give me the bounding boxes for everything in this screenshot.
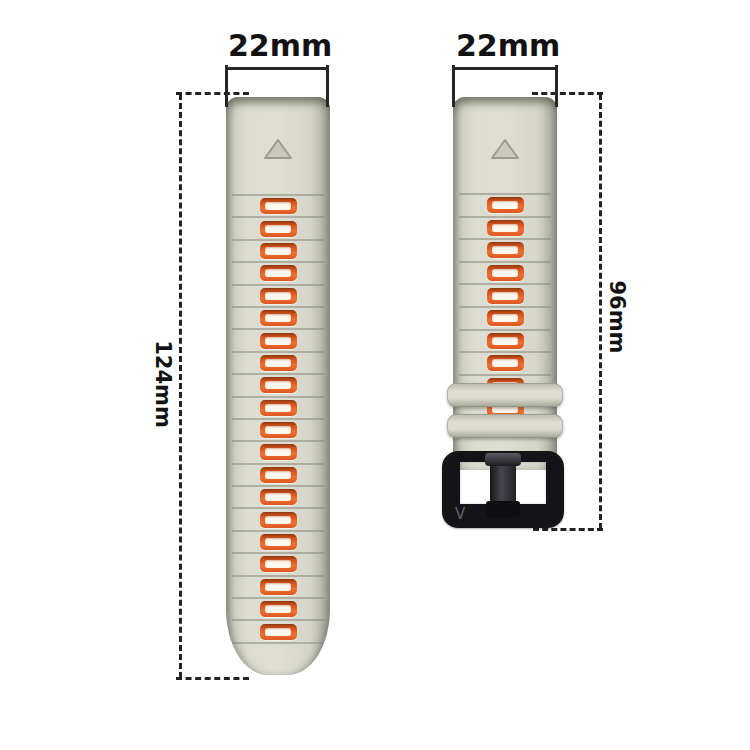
orange-segment xyxy=(487,265,524,281)
orange-segment xyxy=(260,601,297,617)
orange-segment xyxy=(260,288,297,304)
strap-segment-row xyxy=(459,238,551,261)
dimension-tick xyxy=(326,65,329,107)
strap-segment-row xyxy=(459,193,551,216)
strap-segment-row xyxy=(459,283,551,306)
orange-segment xyxy=(260,422,297,438)
strap-segment-row xyxy=(459,261,551,284)
strap-segment-row xyxy=(459,216,551,239)
strap-segment-row xyxy=(232,328,324,350)
left-strap-length-label: 124mm xyxy=(152,340,173,428)
dimension-bar xyxy=(452,67,558,70)
triangle-up-icon xyxy=(263,137,293,161)
strap-segment-row xyxy=(232,575,324,597)
dimension-bar xyxy=(225,67,329,70)
strap-segment-row xyxy=(232,239,324,261)
right-length-bracket-line xyxy=(599,94,602,529)
strap-segment-row xyxy=(232,507,324,529)
left-strap-width-label: 22mm xyxy=(228,31,332,61)
orange-segment xyxy=(487,197,524,213)
strap-segment-row xyxy=(232,261,324,283)
left-strap xyxy=(226,97,330,675)
buckle-prong-cap xyxy=(485,453,521,466)
strap-segment-row xyxy=(232,597,324,619)
strap-segment-row xyxy=(232,485,324,507)
orange-segment xyxy=(260,444,297,460)
dimension-tick xyxy=(225,65,228,107)
strap-segment-row xyxy=(232,216,324,238)
strap-segment-row xyxy=(232,194,324,216)
orange-segment xyxy=(487,242,524,258)
right-strap-width-label: 22mm xyxy=(456,31,560,61)
buckle-engraving: V xyxy=(455,507,465,522)
buckle: V xyxy=(442,451,564,528)
right-width-dimension-line xyxy=(452,65,558,107)
triangle-up-icon xyxy=(490,137,520,161)
dimension-tick xyxy=(555,65,558,107)
keeper-loop xyxy=(447,414,563,438)
orange-segment xyxy=(260,534,297,550)
strap-segment-row xyxy=(459,306,551,329)
orange-segment xyxy=(260,333,297,349)
right-strap-length-label: 96mm xyxy=(606,281,627,354)
orange-segment xyxy=(260,624,297,640)
orange-segment xyxy=(260,467,297,483)
left-length-bracket-bottom xyxy=(176,677,249,680)
strap-segment-row xyxy=(459,351,551,374)
left-width-dimension-line xyxy=(225,65,329,107)
orange-segment xyxy=(487,220,524,236)
strap-segment-row xyxy=(232,351,324,373)
strap-segment-row xyxy=(232,396,324,418)
orange-segment xyxy=(260,243,297,259)
dimension-tick xyxy=(452,65,455,107)
orange-segment xyxy=(260,400,297,416)
orange-segment xyxy=(260,556,297,572)
orange-segment xyxy=(487,288,524,304)
left-length-bracket-line xyxy=(179,94,182,678)
right-length-bracket-bottom xyxy=(533,528,603,531)
watch-band-dimension-diagram: 22mm 22mm 124mm 96mm xyxy=(0,0,750,750)
orange-segment xyxy=(260,579,297,595)
orange-segment xyxy=(260,265,297,281)
orange-segment xyxy=(260,221,297,237)
orange-segment xyxy=(260,489,297,505)
orange-segment xyxy=(487,310,524,326)
buckle-prong-foot xyxy=(486,501,520,517)
orange-segment xyxy=(260,512,297,528)
strap-segment-row xyxy=(232,373,324,395)
strap-segment-row xyxy=(232,619,324,641)
orange-segment xyxy=(260,355,297,371)
orange-segment xyxy=(260,198,297,214)
strap-segment-row xyxy=(232,530,324,552)
orange-segment xyxy=(260,310,297,326)
keeper-loop xyxy=(447,383,563,407)
orange-segment xyxy=(487,355,524,371)
strap-segment-row xyxy=(232,418,324,440)
strap-segment-row xyxy=(459,329,551,352)
strap-segment-row xyxy=(232,463,324,485)
orange-segment xyxy=(487,333,524,349)
orange-segment xyxy=(260,377,297,393)
strap-segment-row xyxy=(232,552,324,574)
strap-segment-row xyxy=(232,284,324,306)
strap-segment-row xyxy=(232,306,324,328)
left-strap-segments xyxy=(232,194,324,644)
strap-segment-row xyxy=(232,440,324,462)
